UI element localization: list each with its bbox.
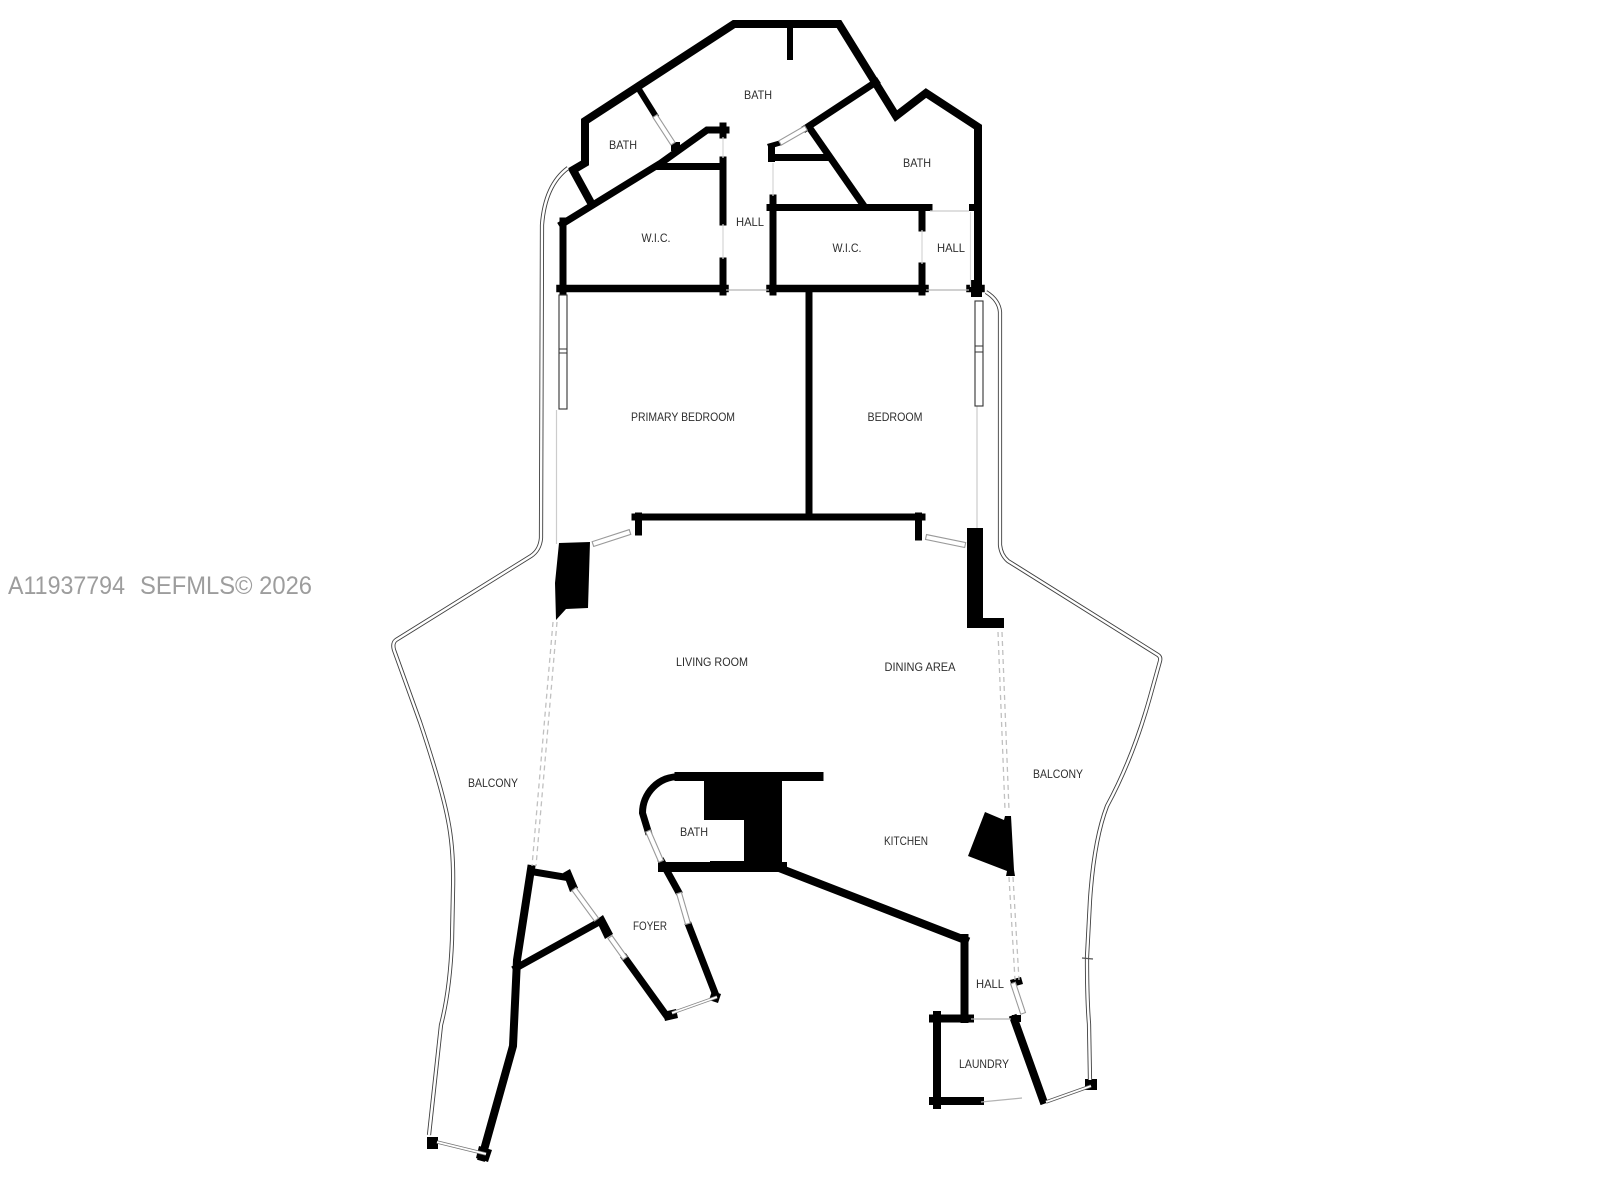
svg-text:BALCONY: BALCONY	[468, 776, 518, 790]
svg-text:W.I.C.: W.I.C.	[642, 231, 671, 245]
svg-text:BATH: BATH	[609, 138, 637, 152]
svg-text:PRIMARY BEDROOM: PRIMARY BEDROOM	[631, 410, 735, 424]
svg-text:DINING AREA: DINING AREA	[885, 660, 956, 674]
svg-text:KITCHEN: KITCHEN	[884, 834, 928, 848]
svg-text:A11937794: A11937794	[8, 572, 125, 600]
svg-text:BALCONY: BALCONY	[1033, 767, 1083, 781]
svg-text:HALL: HALL	[736, 215, 764, 229]
svg-text:HALL: HALL	[976, 977, 1004, 991]
svg-text:BEDROOM: BEDROOM	[868, 410, 923, 424]
svg-text:SEFMLS© 2026: SEFMLS© 2026	[140, 572, 312, 600]
svg-text:BATH: BATH	[680, 825, 708, 839]
svg-text:BATH: BATH	[903, 156, 931, 170]
svg-text:LAUNDRY: LAUNDRY	[959, 1057, 1009, 1071]
svg-text:BATH: BATH	[744, 88, 772, 102]
svg-text:FOYER: FOYER	[633, 919, 667, 933]
svg-text:LIVING ROOM: LIVING ROOM	[676, 655, 748, 669]
svg-text:W.I.C.: W.I.C.	[833, 241, 862, 255]
svg-text:HALL: HALL	[937, 241, 965, 255]
